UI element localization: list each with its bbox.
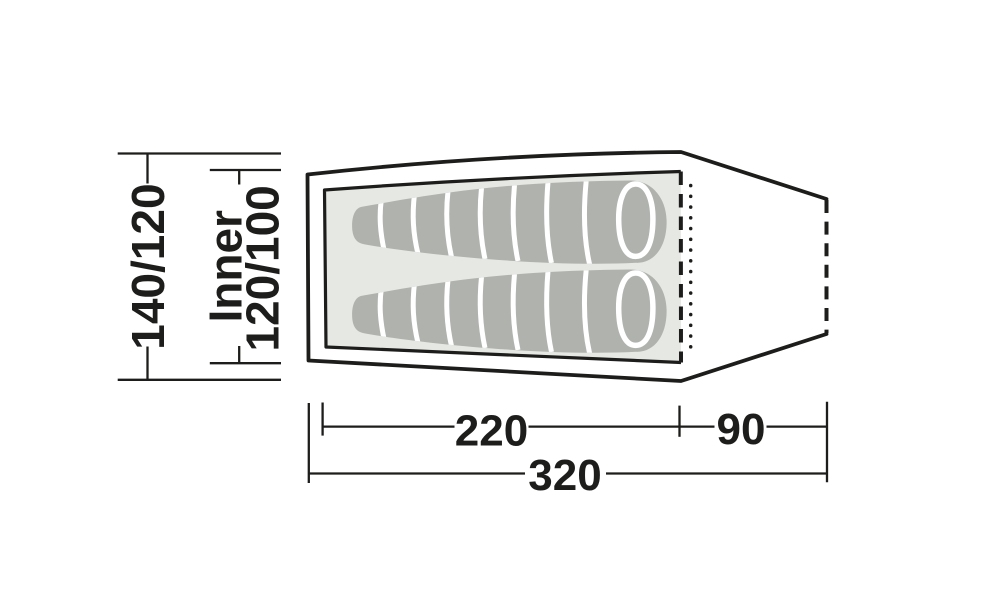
svg-text:90: 90 xyxy=(717,405,766,454)
svg-text:120/100: 120/100 xyxy=(237,185,289,351)
svg-text:220: 220 xyxy=(455,407,528,456)
svg-text:320: 320 xyxy=(528,451,601,500)
svg-text:140/120: 140/120 xyxy=(122,183,174,349)
